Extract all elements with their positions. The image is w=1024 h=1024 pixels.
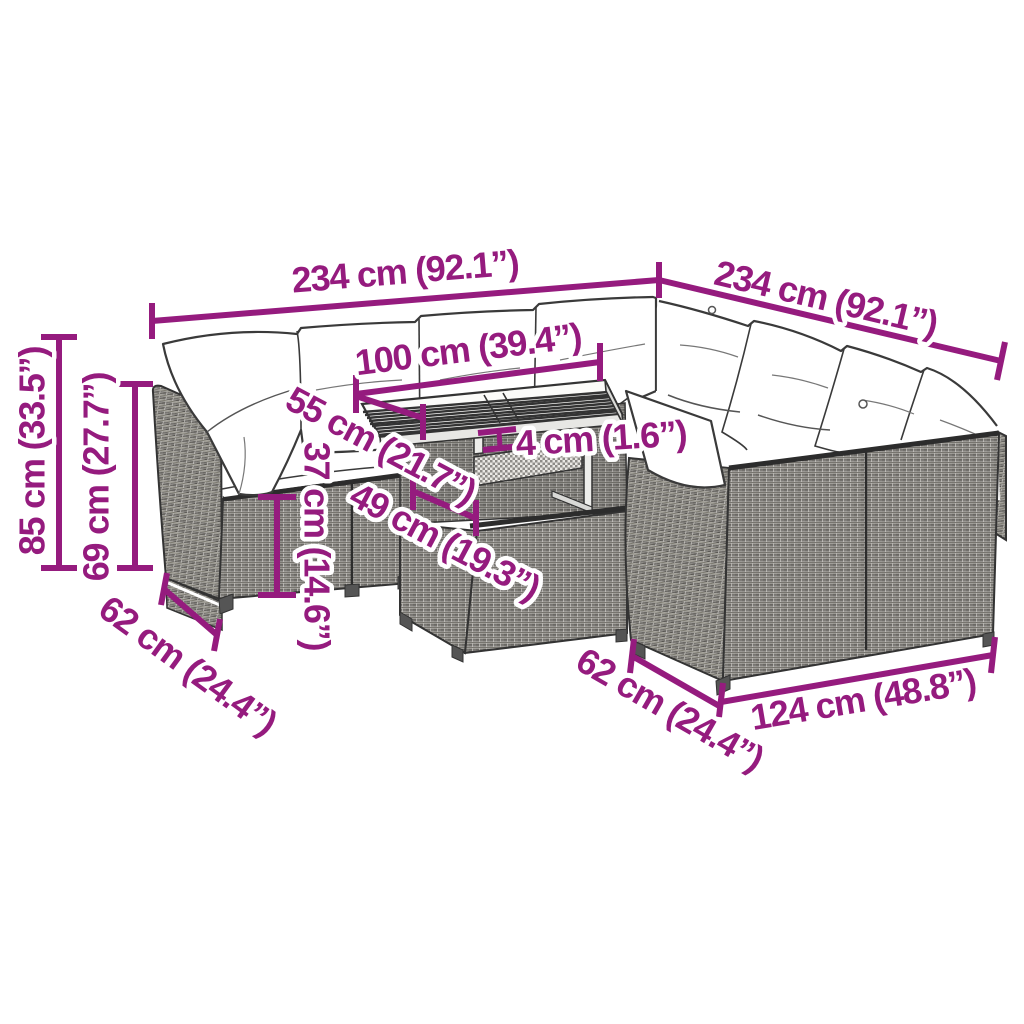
svg-text:85 cm (33.5”): 85 cm (33.5”) bbox=[12, 347, 53, 556]
svg-text:69 cm (27.7”): 69 cm (27.7”) bbox=[76, 373, 117, 582]
svg-text:37 cm (14.6”): 37 cm (14.6”) bbox=[297, 442, 338, 651]
